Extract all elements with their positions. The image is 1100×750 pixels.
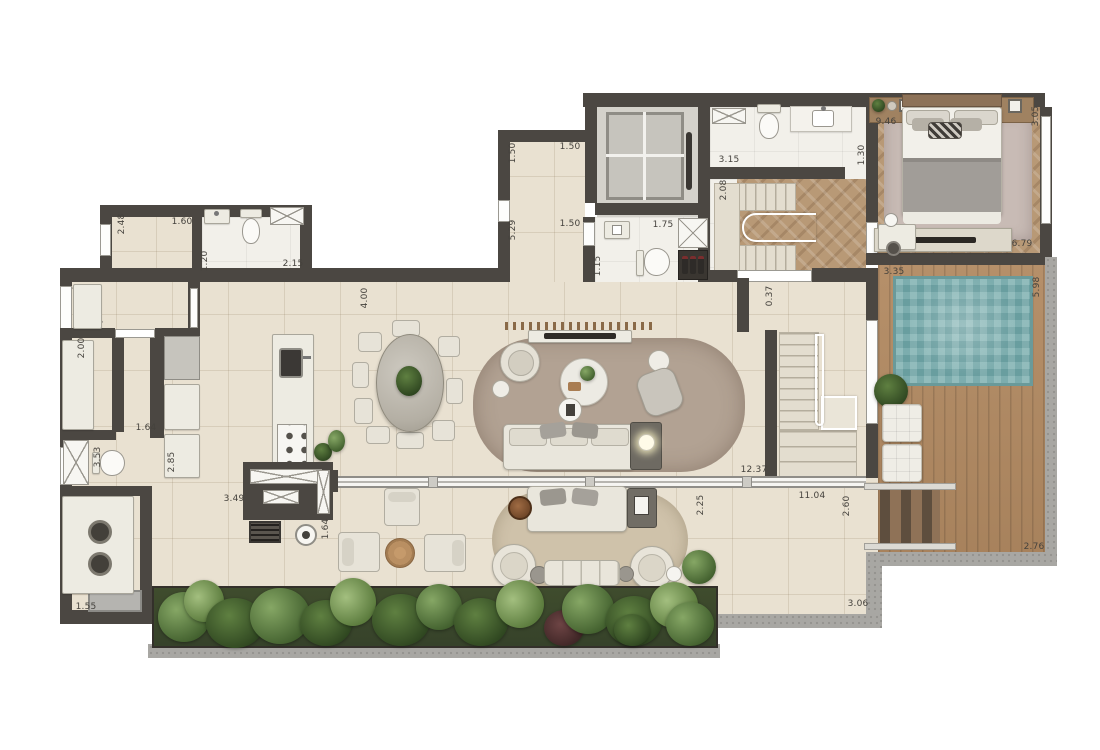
counter-cabinet-icon <box>250 469 322 484</box>
chair-cushion <box>452 540 464 566</box>
faucet-icon <box>214 211 219 216</box>
side-table <box>492 380 510 398</box>
ottoman-bench <box>544 560 620 586</box>
kitchen-cabinet <box>164 434 200 478</box>
parapet-bottom-deck <box>868 552 1057 566</box>
faucet-icon <box>303 356 311 359</box>
plant-centerpiece-icon <box>396 366 422 396</box>
toilet-tank-icon <box>92 452 100 474</box>
pouf-table <box>618 566 634 582</box>
wall <box>585 107 597 203</box>
dining-chair <box>366 426 390 444</box>
desk-chair <box>886 241 901 256</box>
powder-door-opening <box>583 222 595 246</box>
grill-icon <box>249 521 281 543</box>
dining-chair <box>352 362 369 388</box>
shower-box-icon <box>678 218 708 248</box>
dining-chair <box>438 336 460 357</box>
bush-icon <box>496 580 544 628</box>
picture-frame-icon <box>566 404 575 416</box>
sofa-pillow <box>571 487 599 506</box>
toilet-tank-icon <box>757 104 781 113</box>
wall <box>737 278 749 332</box>
deck-step-rail <box>864 543 956 550</box>
elevator-door <box>686 132 692 190</box>
sliding-door-stile <box>742 476 752 488</box>
lower-stair-railing <box>815 334 824 426</box>
kitchen-cabinet <box>164 384 200 430</box>
wall <box>192 217 202 268</box>
basin-icon <box>612 225 622 235</box>
dining-chair <box>396 432 424 449</box>
toilet-tank-icon <box>636 250 644 276</box>
wall <box>710 270 737 282</box>
washer-icon <box>88 520 112 544</box>
bottle-icon <box>690 256 696 274</box>
tv-icon <box>544 333 616 339</box>
foyer-door-opening <box>498 200 510 222</box>
sofa-pillow <box>539 488 567 507</box>
upper-stair-landing <box>714 183 740 273</box>
wall <box>150 338 164 438</box>
pantry-shelf <box>62 340 94 430</box>
wood-stump-table <box>385 538 415 568</box>
floor-foyer <box>510 142 585 282</box>
bush-icon <box>666 602 714 646</box>
hanging-slats-decor <box>505 322 657 330</box>
toilet-icon <box>759 113 779 139</box>
dining-chair <box>354 398 373 424</box>
wall <box>812 268 878 282</box>
tray-icon <box>568 382 581 391</box>
drain-icon <box>302 531 310 539</box>
armchair-seat <box>508 350 534 376</box>
lower-stair-landing-flight <box>779 430 857 477</box>
lower-stair-side-landing <box>821 396 857 430</box>
wall <box>60 430 116 440</box>
lower-stair-flight <box>779 332 819 430</box>
wall <box>60 610 152 624</box>
round-wood-table <box>508 496 532 520</box>
plant-icon <box>580 366 595 381</box>
bed-foot-throw <box>903 212 1001 224</box>
bed-headboard <box>902 94 1002 107</box>
chair-seat <box>500 552 528 580</box>
dining-chair <box>446 378 463 404</box>
plant-icon <box>874 374 908 408</box>
wall <box>710 167 845 179</box>
floor-plan: 2.481.601.202.151.505.291.501.501.751.15… <box>0 0 1100 750</box>
wall <box>498 130 597 142</box>
chair-seat <box>638 554 666 582</box>
bedroom-window <box>1041 116 1051 224</box>
shower-box-icon <box>712 108 746 124</box>
hall-door-opening <box>190 288 198 328</box>
sliding-door-track <box>338 481 866 483</box>
window <box>866 320 878 424</box>
toilet-icon <box>242 218 260 244</box>
table-lamp-icon <box>638 434 655 451</box>
chair-cushion <box>388 492 416 502</box>
basin-icon <box>812 110 834 127</box>
counter-cabinet-icon <box>317 470 330 514</box>
garden-planter <box>152 586 718 648</box>
wall <box>60 268 510 282</box>
floor-closet-room <box>112 217 192 268</box>
deck-lounger <box>882 444 922 482</box>
wall <box>60 486 140 496</box>
shower-box-icon <box>63 440 89 485</box>
corridor-threshold <box>115 329 155 338</box>
counter-cabinet-icon <box>263 490 299 504</box>
window <box>100 224 111 256</box>
kettle-icon <box>884 213 898 227</box>
tray-icon <box>887 101 897 111</box>
wall <box>112 338 124 432</box>
dining-chair <box>358 332 382 352</box>
parapet-right <box>1045 257 1057 560</box>
deck-lounger <box>882 404 922 442</box>
clock-frame-icon <box>1008 99 1022 113</box>
entry-door-opening <box>60 286 72 332</box>
kitchen-sink-icon <box>279 348 303 378</box>
toilet-icon <box>100 450 125 476</box>
dryer-icon <box>88 552 112 576</box>
plant-icon <box>328 430 345 452</box>
picture-frame-icon <box>634 496 649 515</box>
plant-icon <box>682 550 716 584</box>
sofa-pillow <box>571 422 598 440</box>
deck-step-rail <box>864 483 956 490</box>
sliding-door-stile <box>428 476 438 488</box>
faucet-icon <box>821 106 826 111</box>
upper-stair-railing <box>742 213 816 242</box>
toilet-tank-icon <box>240 209 262 218</box>
wall <box>595 203 710 215</box>
chair-cushion <box>342 538 354 566</box>
elevator-cab-cross-v <box>643 112 646 200</box>
pool <box>893 276 1033 386</box>
wall <box>60 328 115 338</box>
shower-box-icon <box>270 207 304 225</box>
accent-pillow <box>928 122 962 139</box>
dining-chair <box>432 420 455 441</box>
bush-icon <box>614 614 650 646</box>
deck-steps <box>880 490 940 543</box>
refrigerator-icon <box>164 336 200 380</box>
bottle-icon <box>698 256 704 274</box>
bush-icon <box>330 578 376 626</box>
pedestal-table <box>666 566 682 582</box>
laundry-counter <box>62 496 134 594</box>
plant-icon <box>872 99 885 112</box>
wall <box>765 330 777 478</box>
bottle-icon <box>682 256 688 274</box>
toilet-icon <box>644 248 670 276</box>
cooktop-icon <box>277 424 307 466</box>
entry-wardrobe <box>73 284 102 329</box>
parapet-bottom-terrace <box>700 614 880 628</box>
bed-blanket <box>903 158 1001 212</box>
tv-icon <box>906 237 976 243</box>
